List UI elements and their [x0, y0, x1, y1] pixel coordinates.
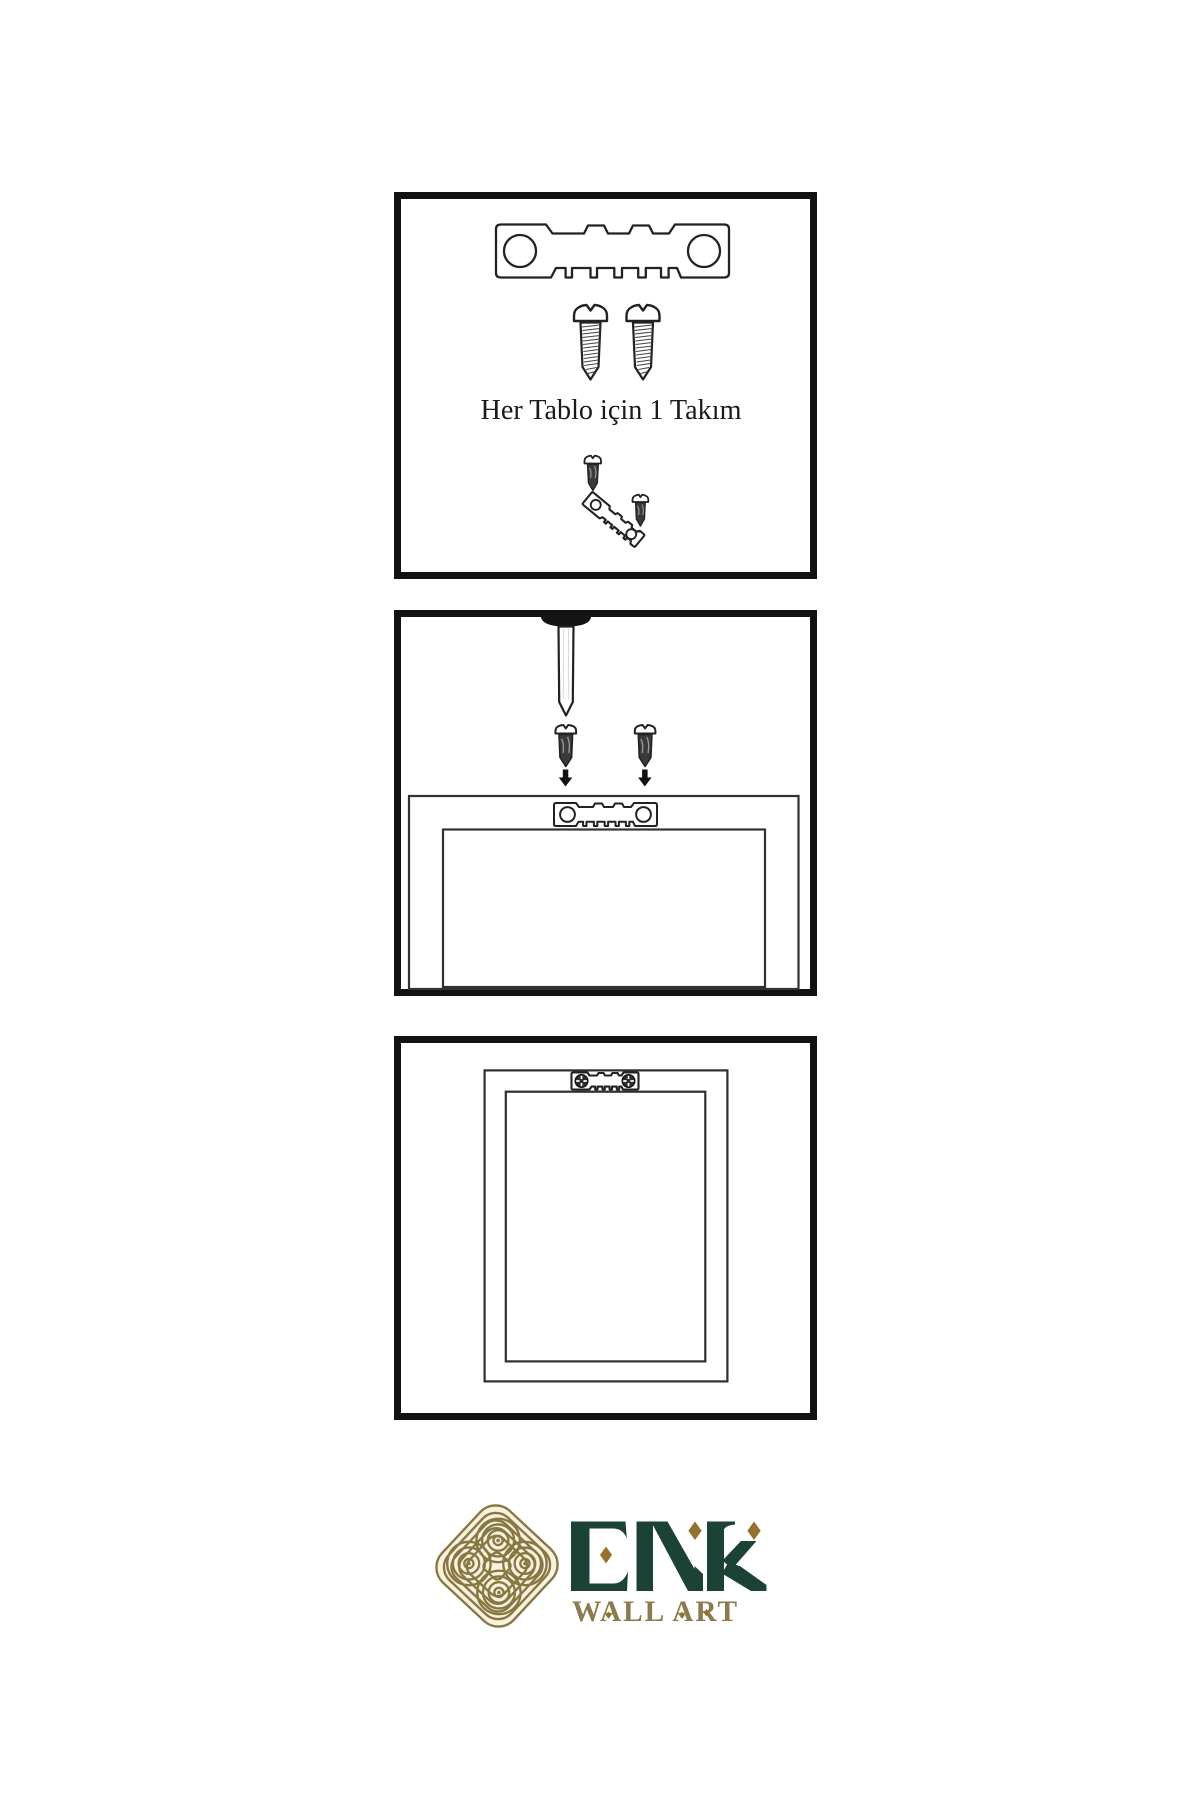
- svg-text:Her Tablo için 1 Takım: Her Tablo için 1 Takım: [481, 394, 742, 426]
- svg-text:WALL ART: WALL ART: [572, 1595, 739, 1628]
